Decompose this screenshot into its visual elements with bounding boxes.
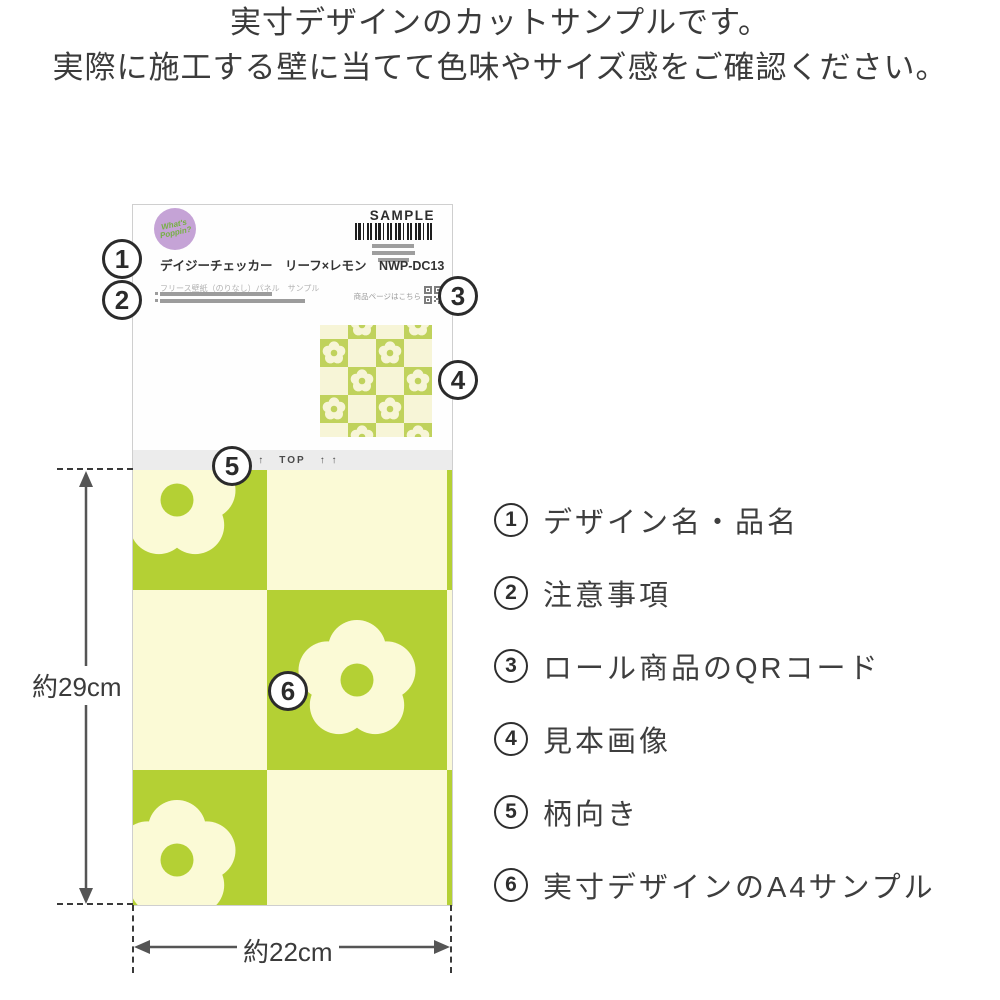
callout-marker-4: 4 <box>438 360 478 400</box>
brand-logo: What's Poppin? <box>154 208 196 250</box>
qr-block: 商品ページはこちら <box>354 286 442 304</box>
legend-num-2: 2 <box>494 576 528 610</box>
height-dimension-label: 約29cm <box>26 666 128 705</box>
callout-marker-1: 1 <box>102 239 142 279</box>
legend: 1 デザイン名・品名 2 注意事項 3 ロール商品のQRコード 4 見本画像 5… <box>494 503 936 941</box>
legend-label-6: 実寸デザインのA4サンプル <box>543 864 936 906</box>
callout-marker-2: 2 <box>102 280 142 320</box>
legend-num-3: 3 <box>494 649 528 683</box>
callout-marker-3: 3 <box>438 276 478 316</box>
intro-line-1: 実寸デザインのカットサンプルです。 <box>0 0 1000 45</box>
legend-num-4: 4 <box>494 722 528 756</box>
legend-num-5: 5 <box>494 795 528 829</box>
pattern-thumbnail <box>320 325 432 437</box>
callout-marker-6: 6 <box>268 671 308 711</box>
sample-badge: SAMPLE <box>355 208 435 223</box>
product-name: デイジーチェッカー リーフ×レモン NWP-DC13 <box>160 255 440 274</box>
dimension-tick <box>57 903 133 905</box>
note-text-bar <box>160 292 272 296</box>
dimension-tick <box>57 468 133 470</box>
legend-num-1: 1 <box>494 503 528 537</box>
orientation-arrows-icon: ↑ ↑ <box>320 455 339 466</box>
legend-item: 6 実寸デザインのA4サンプル <box>494 868 936 902</box>
orientation-strip: ↑ ↑ TOP ↑ ↑ <box>133 450 452 470</box>
legend-num-6: 6 <box>494 868 528 902</box>
note-text-bar <box>160 299 305 303</box>
note-bullet <box>155 292 158 295</box>
qr-caption: 商品ページはこちら <box>354 291 421 304</box>
legend-label-1: デザイン名・品名 <box>543 499 799 541</box>
legend-item: 2 注意事項 <box>494 576 936 610</box>
width-dimension-label: 約22cm <box>237 931 339 970</box>
callout-marker-5: 5 <box>212 446 252 486</box>
intro-text: 実寸デザインのカットサンプルです。 実際に施工する壁に当てて色味やサイズ感をご確… <box>0 0 1000 90</box>
legend-label-4: 見本画像 <box>543 718 671 760</box>
legend-item: 5 柄向き <box>494 795 936 829</box>
orientation-label: TOP <box>279 455 305 466</box>
legend-item: 1 デザイン名・品名 <box>494 503 936 537</box>
barcode-caption-bar <box>372 244 414 248</box>
intro-line-2: 実際に施工する壁に当てて色味やサイズ感をご確認ください。 <box>0 45 1000 90</box>
legend-label-2: 注意事項 <box>543 572 671 614</box>
legend-item: 4 見本画像 <box>494 722 936 756</box>
legend-label-3: ロール商品のQRコード <box>543 645 881 687</box>
barcode <box>355 223 435 240</box>
legend-item: 3 ロール商品のQRコード <box>494 649 936 683</box>
page: 実寸デザインのカットサンプルです。 実際に施工する壁に当てて色味やサイズ感をご確… <box>0 0 1000 1000</box>
sample-card: What's Poppin? SAMPLE デイジーチェッカー リーフ×レモン … <box>133 205 452 905</box>
note-bullet <box>155 299 158 302</box>
legend-label-5: 柄向き <box>543 791 639 833</box>
